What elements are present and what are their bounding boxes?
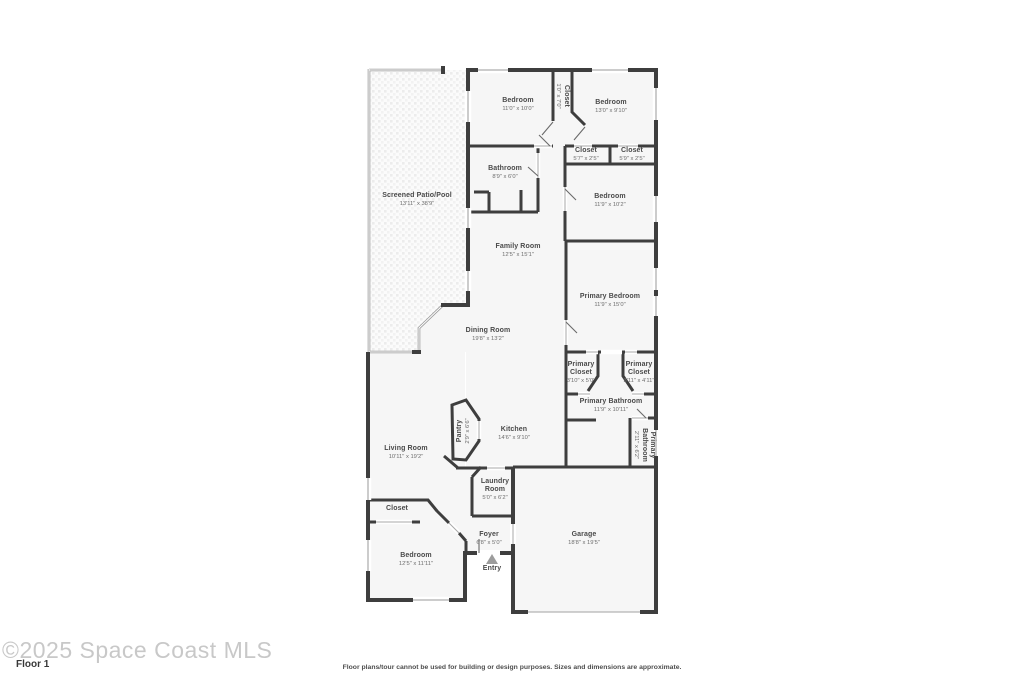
room-label-bedroom-top-left: Bedroom 11'0" x 10'0" bbox=[502, 97, 533, 113]
room-label-bedroom-bottom: Bedroom 12'5" x 11'11" bbox=[399, 552, 433, 568]
room-label-closet-right: Closet 5'9" x 2'5" bbox=[619, 147, 644, 163]
room-label-kitchen: Kitchen 14'6" x 9'10" bbox=[498, 426, 530, 442]
room-label-bedroom-top-right: Bedroom 13'0" x 9'10" bbox=[595, 99, 627, 115]
room-label-primary-bathroom-small: Primary Bathroom 2'11" x 6'2" bbox=[632, 427, 656, 463]
room-label-dining-room: Dining Room 19'8" x 13'2" bbox=[466, 327, 511, 343]
room-label-garage: Garage 18'8" x 19'5" bbox=[568, 531, 600, 547]
room-label-primary-closet-left: Primary Closet 3'10" x 5'0" bbox=[563, 361, 599, 385]
room-label-closet-left: Closet 5'7" x 2'5" bbox=[573, 147, 598, 163]
room-label-closet-bottom: Closet bbox=[386, 505, 408, 513]
room-label-primary-bedroom: Primary Bedroom 11'9" x 15'0" bbox=[580, 293, 640, 309]
room-label-bedroom-right: Bedroom 11'9" x 10'2" bbox=[594, 193, 625, 209]
room-label-primary-bathroom: Primary Bathroom 11'9" x 10'11" bbox=[580, 398, 643, 414]
room-label-foyer: Foyer 6'8" x 5'0" bbox=[476, 531, 501, 547]
room-label-pantry: Pantry 2'9" x 6'6" bbox=[456, 418, 472, 443]
floor-label: Floor 1 bbox=[16, 659, 49, 670]
room-label-entry: Entry bbox=[483, 565, 501, 573]
room-label-family-room: Family Room 12'5" x 15'1" bbox=[495, 243, 540, 259]
room-label-hall-closet: Closet 1'0" x 7'0" bbox=[554, 83, 570, 108]
room-label-primary-closet-right: Primary Closet 3'11" x 4'11" bbox=[621, 361, 657, 385]
disclaimer-text: Floor plans/tour cannot be used for buil… bbox=[343, 664, 682, 671]
room-label-laundry-room: Laundry Room 5'0" x 6'2" bbox=[474, 478, 516, 502]
room-label-screened-patio: Screened Patio/Pool 13'11" x 38'9" bbox=[382, 192, 452, 208]
floor-plan-page: Screened Patio/Pool 13'11" x 38'9" Bedro… bbox=[0, 0, 1024, 683]
room-label-living-room: Living Room 10'11" x 19'2" bbox=[384, 445, 428, 461]
room-label-bathroom: Bathroom 8'9" x 6'0" bbox=[488, 165, 522, 181]
